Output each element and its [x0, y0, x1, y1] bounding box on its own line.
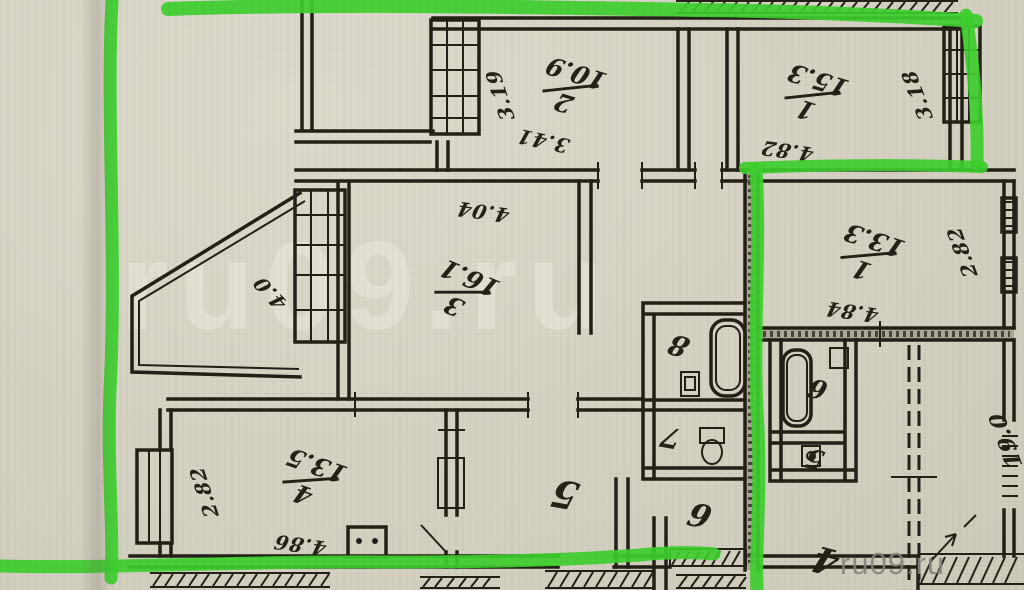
highlight-line-left [109, 2, 112, 578]
highlight-line-top [168, 6, 976, 21]
green-highlighter-layer [0, 0, 1024, 590]
highlight-line-mid-horizontal [745, 165, 982, 168]
floor-plan-scan: ru09.ru [0, 0, 1024, 590]
highlight-line-right-upper [966, 15, 977, 164]
highlight-line-mid-vertical [756, 169, 759, 590]
green-highlight-outline [0, 2, 982, 590]
